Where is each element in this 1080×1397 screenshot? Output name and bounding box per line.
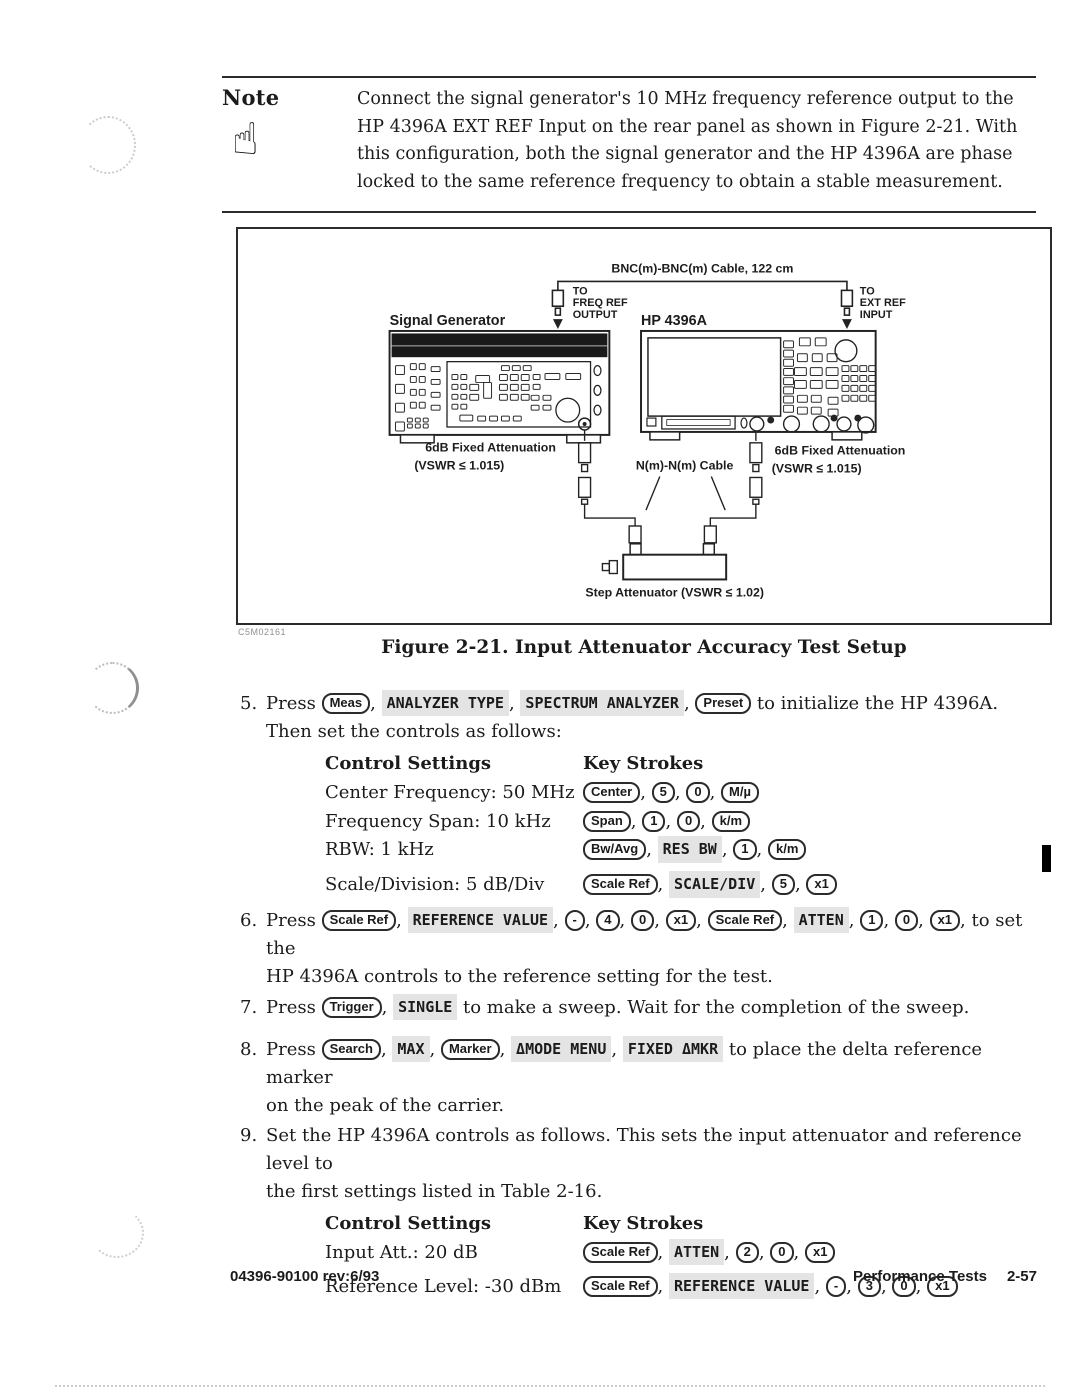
freq-ref-label: OUTPUT (573, 309, 618, 321)
attenuator-chains (579, 430, 762, 543)
hardkey-0: 0 (686, 782, 709, 803)
hardkey-2: 2 (736, 1242, 759, 1263)
key-strokes: Center, 5, 0, M/µ (583, 779, 1040, 807)
key-strokes: Scale Ref, ATTEN, 2, 0, x1 (583, 1239, 1040, 1267)
hardkey-0: 0 (770, 1242, 793, 1263)
hardkey-scale-ref: Scale Ref (708, 910, 783, 931)
hardkey-m: M/µ (721, 782, 759, 803)
step-text: Press Search, MAX, Marker, ΔMODE MENU, F… (266, 1036, 1040, 1120)
control-setting: Input Att.: 20 dB (325, 1239, 583, 1267)
table-header: Control SettingsKey Strokes (325, 750, 1040, 778)
step-number: 6. (240, 907, 266, 991)
softkey-fixed-mkr: FIXED ΔMKR (623, 1036, 723, 1062)
step-item-5: 5.Press Meas, ANALYZER TYPE, SPECTRUM AN… (240, 690, 1040, 746)
hardkey-trigger: Trigger (322, 997, 382, 1018)
hardkey-1: 1 (642, 811, 665, 832)
figure-caption: Figure 2-21. Input Attenuator Accuracy T… (236, 637, 1052, 658)
hardkey-key: - (826, 1276, 846, 1297)
analyzer-label: HP 4396A (641, 313, 707, 329)
table-row: Scale/Division: 5 dB/DivScale Ref, SCALE… (325, 871, 1040, 899)
figure-artifact-code: C5M02161 (238, 627, 286, 637)
hardkey-x1: x1 (666, 910, 696, 931)
control-setting: RBW: 1 kHz (325, 836, 583, 864)
floppy-drive (662, 416, 735, 429)
table-header: Control SettingsKey Strokes (325, 1210, 1040, 1238)
softkey-reference-value: REFERENCE VALUE (408, 907, 553, 933)
table-row: Frequency Span: 10 kHzSpan, 1, 0, k/m (325, 808, 1040, 836)
column-header: Key Strokes (583, 750, 1040, 778)
change-bar (1042, 845, 1051, 872)
step-attenuator-label: Step Attenuator (VSWR ≤ 1.02) (585, 585, 764, 599)
step-item-8: 8.Press Search, MAX, Marker, ΔMODE MENU,… (240, 1036, 1040, 1120)
footer-page-number: 2-57 (1007, 1268, 1037, 1285)
arrow-down-icon (842, 319, 852, 329)
step-item-7: 7.Press Trigger, SINGLE to make a sweep.… (240, 994, 1040, 1022)
figure-2-21: BNC(m)-BNC(m) Cable, 122 cm TO FREQ REF … (236, 227, 1052, 625)
scan-artifact (55, 1385, 1045, 1387)
step-item-9: 9.Set the HP 4396A controls as follows. … (240, 1122, 1040, 1206)
hardkey-meas: Meas (322, 693, 371, 714)
hardkey-span: Span (583, 811, 631, 832)
step-attenuator-drawing (602, 544, 726, 580)
atten-left-label: (VSWR ≤ 1.015) (414, 459, 504, 473)
softkey-mode-menu: ΔMODE MENU (511, 1036, 611, 1062)
key-strokes: Span, 1, 0, k/m (583, 808, 1040, 836)
cable-label: BNC(m)-BNC(m) Cable, 122 cm (611, 262, 793, 276)
hardkey-1: 1 (860, 910, 883, 931)
column-header: Key Strokes (583, 1210, 1040, 1238)
hardkey-k-m: k/m (712, 811, 750, 832)
note-label-column: Note ☝ (222, 85, 357, 197)
manual-page: Note ☝ Connect the signal generator's 10… (0, 0, 1080, 1397)
key-strokes: Scale Ref, SCALE/DIV, 5, x1 (583, 871, 1040, 899)
step-number: 7. (240, 994, 266, 1022)
hardkey-5: 5 (772, 874, 795, 895)
hardkey-center: Center (583, 782, 640, 803)
atten-right-label: (VSWR ≤ 1.015) (772, 462, 862, 476)
note-title: Note (222, 85, 357, 110)
step-number: 9. (240, 1122, 266, 1206)
step-item-6: 6.Press Scale Ref, REFERENCE VALUE, -, 4… (240, 907, 1040, 991)
hardkey-x1: x1 (806, 874, 836, 895)
control-setting: Scale/Division: 5 dB/Div (325, 871, 583, 899)
hardkey-0: 0 (895, 910, 918, 931)
scan-artifact (80, 116, 136, 174)
rotary-knob (835, 340, 857, 362)
footer-section: Performance Tests (853, 1268, 987, 1285)
softkey-analyzer-type: ANALYZER TYPE (382, 690, 509, 716)
step-text: Press Meas, ANALYZER TYPE, SPECTRUM ANAL… (266, 690, 1040, 746)
softkey-reference-value: REFERENCE VALUE (669, 1273, 814, 1299)
table-row: Center Frequency: 50 MHzCenter, 5, 0, M/… (325, 779, 1040, 807)
analyzer-drawing (641, 331, 876, 440)
control-settings-table-2: Control SettingsKey StrokesInput Att.: 2… (325, 1210, 1040, 1301)
hardkey-preset: Preset (695, 693, 751, 714)
hardkey-marker: Marker (441, 1039, 500, 1060)
hardkey-1: 1 (733, 839, 756, 860)
control-settings-table-1: Control SettingsKey StrokesCenter Freque… (325, 750, 1040, 899)
atten-right-label: 6dB Fixed Attenuation (775, 444, 906, 458)
softkey-single: SINGLE (393, 994, 457, 1020)
hardkey-x1: x1 (930, 910, 960, 931)
hardkey-key: - (565, 910, 585, 931)
table-row: RBW: 1 kHzBw/Avg, RES BW, 1, k/m (325, 836, 1040, 864)
hardkey-scale-ref: Scale Ref (583, 874, 658, 895)
step-text: Press Trigger, SINGLE to make a sweep. W… (266, 994, 1040, 1022)
softkey-scale-div: SCALE/DIV (669, 871, 760, 897)
step-text: Set the HP 4396A controls as follows. Th… (266, 1122, 1040, 1206)
note-text: Connect the signal generator's 10 MHz fr… (357, 85, 1036, 197)
test-setup-diagram: BNC(m)-BNC(m) Cable, 122 cm TO FREQ REF … (238, 229, 1050, 623)
softkey-max: MAX (392, 1036, 429, 1062)
scan-artifact (90, 1208, 144, 1258)
key-strokes: Bw/Avg, RES BW, 1, k/m (583, 836, 1040, 864)
hardkey-scale-ref: Scale Ref (583, 1242, 658, 1263)
control-setting: Center Frequency: 50 MHz (325, 779, 583, 807)
signal-generator-label: Signal Generator (390, 313, 506, 329)
hardkey-0: 0 (631, 910, 654, 931)
softkey-spectrum-analyzer: SPECTRUM ANALYZER (520, 690, 684, 716)
note-section: Note ☝ Connect the signal generator's 10… (222, 76, 1036, 213)
control-setting: Frequency Span: 10 kHz (325, 808, 583, 836)
step-text: Press Scale Ref, REFERENCE VALUE, -, 4, … (266, 907, 1040, 991)
step-number: 8. (240, 1036, 266, 1120)
pointing-hand-icon: ☝ (232, 118, 357, 162)
nn-cable-label: N(m)-N(m) Cable (636, 459, 734, 473)
hardkey-5: 5 (652, 782, 675, 803)
footer-right: Performance Tests 2-57 (853, 1268, 1037, 1285)
freq-ref-label: FREQ REF (573, 297, 628, 309)
procedure-steps: 5.Press Meas, ANALYZER TYPE, SPECTRUM AN… (240, 690, 1040, 1309)
softkey-atten: ATTEN (669, 1239, 724, 1265)
hardkey-scale-ref: Scale Ref (583, 1276, 658, 1297)
table-row: Input Att.: 20 dBScale Ref, ATTEN, 2, 0,… (325, 1239, 1040, 1267)
freq-ref-label: TO (573, 285, 588, 297)
hardkey-scale-ref: Scale Ref (322, 910, 397, 931)
hardkey-0: 0 (677, 811, 700, 832)
hardkey-4: 4 (596, 910, 619, 931)
step-number: 5. (240, 690, 266, 746)
ext-ref-label: EXT REF (860, 297, 906, 309)
hardkey-k-m: k/m (768, 839, 806, 860)
ext-ref-label: INPUT (860, 309, 893, 321)
hardkey-x1: x1 (805, 1242, 835, 1263)
column-header: Control Settings (325, 1210, 583, 1238)
atten-left-label: 6dB Fixed Attenuation (425, 441, 556, 455)
column-header: Control Settings (325, 750, 583, 778)
analyzer-screen (648, 338, 781, 416)
hardkey-search: Search (322, 1039, 381, 1060)
hardkey-bw-avg: Bw/Avg (583, 839, 646, 860)
softkey-atten: ATTEN (794, 907, 849, 933)
scan-artifact (86, 662, 139, 714)
softkey-res-bw: RES BW (658, 836, 722, 862)
ext-ref-label: TO (860, 285, 875, 297)
arrow-down-icon (553, 319, 563, 329)
footer-doc-number: 04396-90100 rev:6/93 (230, 1268, 379, 1285)
